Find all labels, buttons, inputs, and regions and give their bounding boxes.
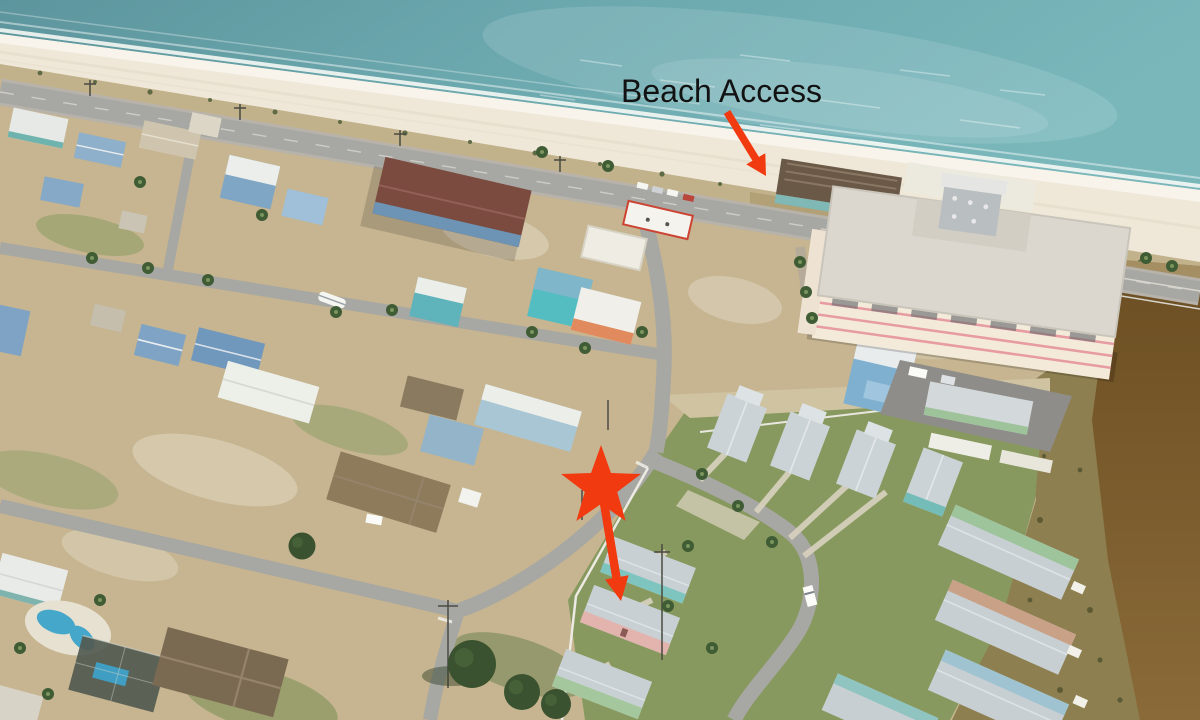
roof-tower xyxy=(934,172,1007,237)
aerial-photo: Beach Access xyxy=(0,0,1200,720)
beach-access-label: Beach Access xyxy=(621,73,822,109)
aerial-photo-canvas: Beach Access xyxy=(0,0,1200,720)
